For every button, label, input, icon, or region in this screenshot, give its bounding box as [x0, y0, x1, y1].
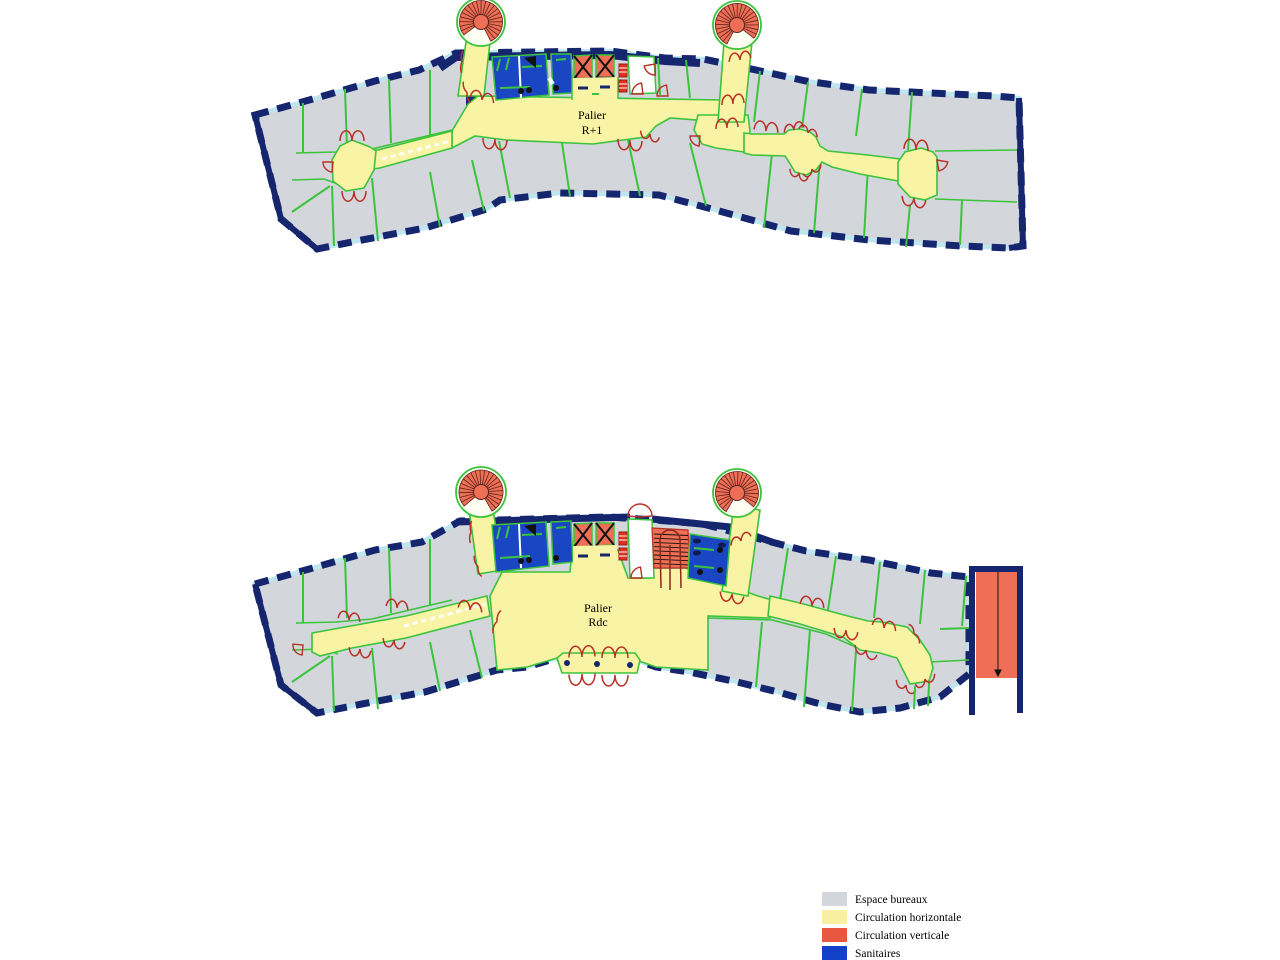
- svg-text:Sanitaires: Sanitaires: [855, 948, 901, 960]
- svg-text:Circulation horizontale: Circulation horizontale: [855, 912, 961, 924]
- svg-text:Circulation verticale: Circulation verticale: [855, 930, 949, 942]
- svg-text:Palier: Palier: [578, 108, 606, 122]
- svg-text:R+1: R+1: [582, 123, 603, 137]
- svg-text:Espace bureaux: Espace bureaux: [855, 894, 928, 906]
- svg-text:Palier: Palier: [584, 601, 612, 615]
- svg-text:Rdc: Rdc: [588, 615, 607, 629]
